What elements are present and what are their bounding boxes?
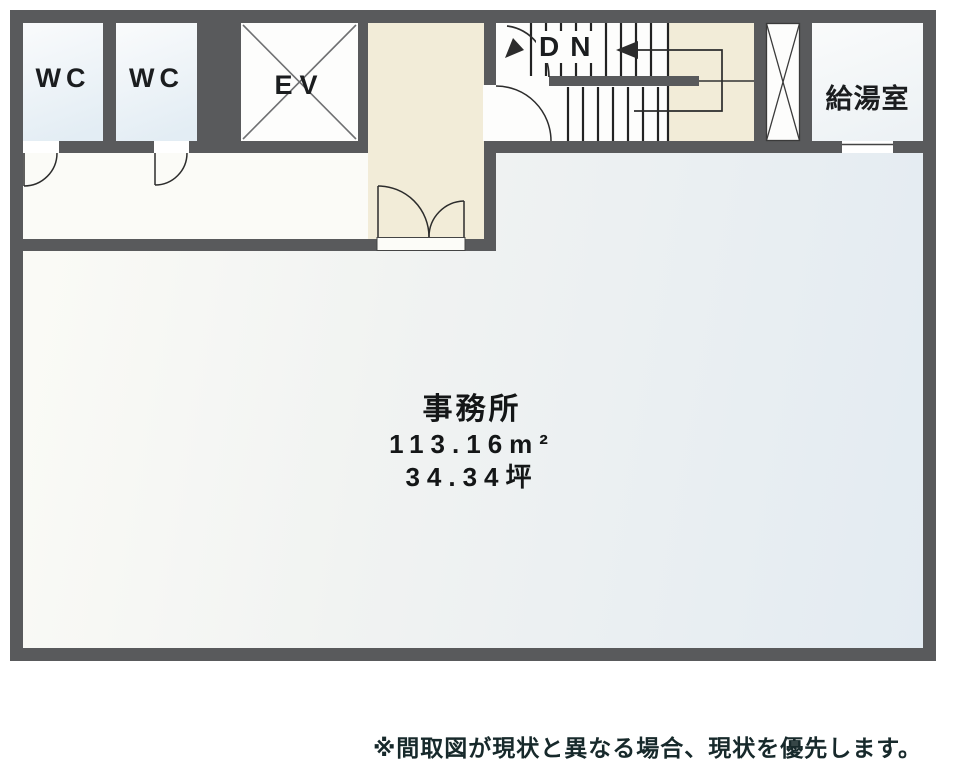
stairs-dn-label: DN: [536, 31, 604, 63]
wall: [23, 239, 377, 251]
elevator-label: EV: [241, 70, 358, 100]
floor-plan-page: WC WC EV DN 給湯室 事務所 113.16m² 34.34坪 ※間取図…: [0, 0, 960, 768]
wall: [893, 141, 923, 153]
disclaimer-note: ※間取図が現状と異なる場合、現状を優先します。: [373, 729, 922, 763]
hallway: [368, 23, 484, 239]
wall: [754, 23, 766, 141]
office-name: 事務所: [312, 391, 632, 428]
wall: [358, 23, 368, 141]
stair-landing: [668, 23, 754, 141]
wall-outer-bottom: [10, 648, 936, 661]
office-label-block: 事務所 113.16m² 34.34坪: [312, 391, 632, 494]
wall-outer-left: [10, 10, 23, 661]
wall: [59, 141, 154, 153]
kitchenette-label: 給湯室: [812, 84, 923, 114]
wall: [484, 141, 842, 153]
office-area-sqm: 113.16m²: [312, 428, 632, 461]
wall: [484, 23, 496, 85]
wall: [197, 23, 241, 141]
wc2-label: WC: [116, 63, 197, 93]
corridor: [23, 153, 368, 239]
wall-outer-top: [10, 10, 936, 23]
room-kitchenette: [812, 23, 923, 141]
office-area-tsubo: 34.34坪: [312, 461, 632, 494]
wall: [189, 141, 368, 153]
wall-outer-right: [923, 10, 936, 661]
wall: [800, 23, 812, 141]
wall: [484, 141, 496, 251]
wall: [103, 23, 116, 141]
wc1-label: WC: [23, 63, 103, 93]
